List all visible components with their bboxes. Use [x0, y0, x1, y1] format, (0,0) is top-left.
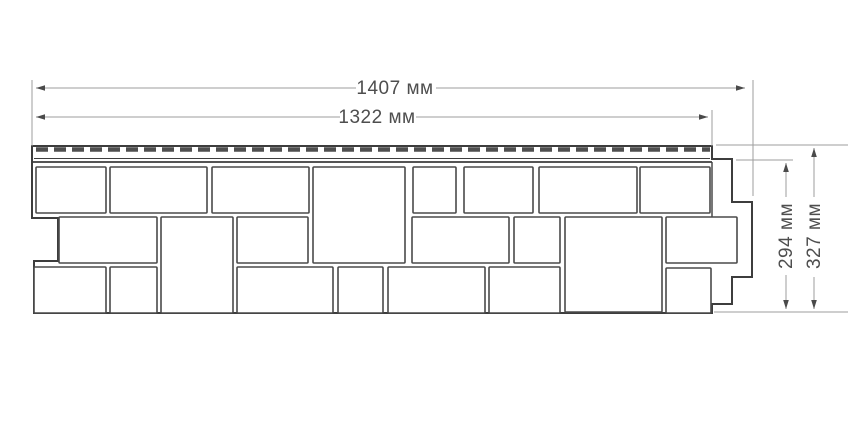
dim-label-width-inner: 1322 мм: [338, 107, 415, 128]
dim-label-width-total: 1407 мм: [356, 78, 433, 99]
dim-label-height-total: 327 мм: [804, 203, 825, 269]
dim-label-height-inner: 294 мм: [776, 203, 797, 269]
panel-dimension-diagram: 1407 мм 1322 мм 294 мм 327 мм: [0, 0, 850, 425]
panel-technical-drawing: 1407 мм 1322 мм 294 мм 327 мм: [0, 0, 850, 425]
panel-shape-layer: [32, 146, 752, 313]
